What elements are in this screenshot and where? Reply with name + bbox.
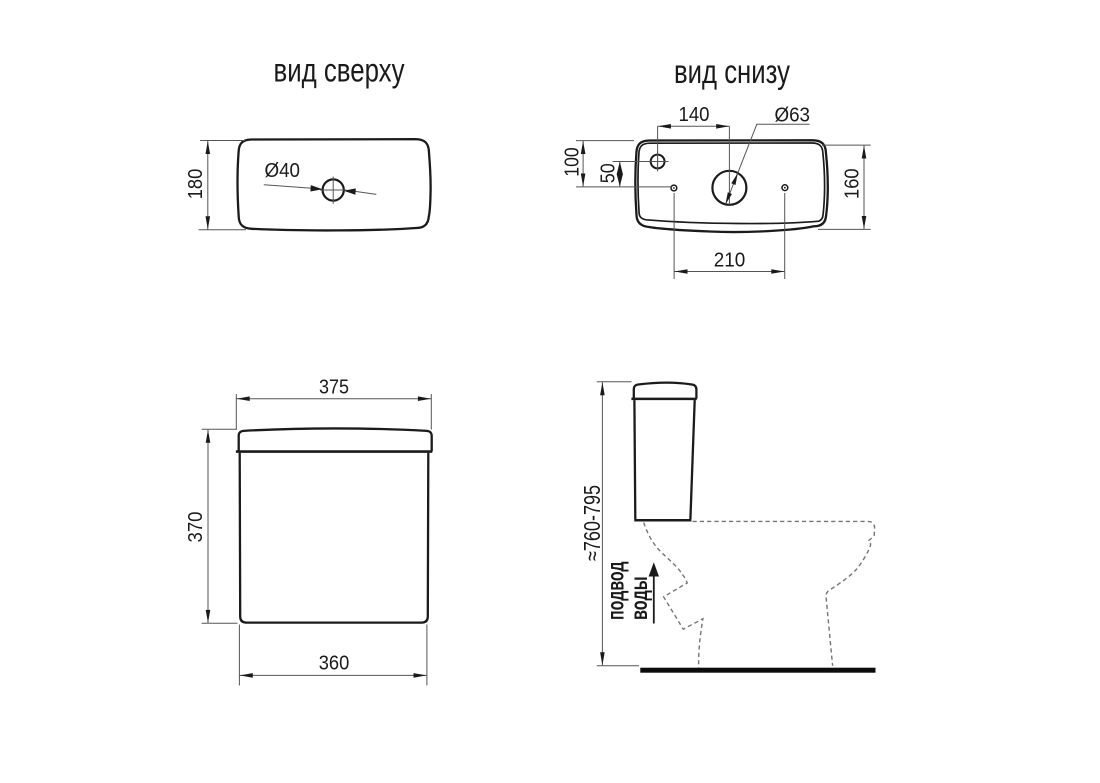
svg-text:370: 370 bbox=[185, 512, 207, 543]
svg-text:≈760-795: ≈760-795 bbox=[579, 485, 605, 561]
svg-text:вид сверху: вид сверху bbox=[274, 52, 405, 89]
svg-text:50: 50 bbox=[598, 163, 620, 183]
svg-text:210: 210 bbox=[714, 249, 746, 271]
svg-text:Ø63: Ø63 bbox=[775, 104, 811, 126]
svg-text:вид снизу: вид снизу bbox=[674, 53, 790, 90]
svg-text:375: 375 bbox=[319, 376, 349, 398]
svg-text:180: 180 bbox=[185, 169, 207, 200]
svg-text:Ø40: Ø40 bbox=[265, 160, 301, 182]
svg-text:360: 360 bbox=[319, 652, 350, 674]
svg-text:100: 100 bbox=[562, 147, 584, 177]
svg-text:подвод: подвод bbox=[602, 561, 628, 620]
svg-text:160: 160 bbox=[841, 168, 863, 199]
svg-text:140: 140 bbox=[679, 104, 710, 126]
svg-text:воды: воды bbox=[626, 576, 652, 620]
